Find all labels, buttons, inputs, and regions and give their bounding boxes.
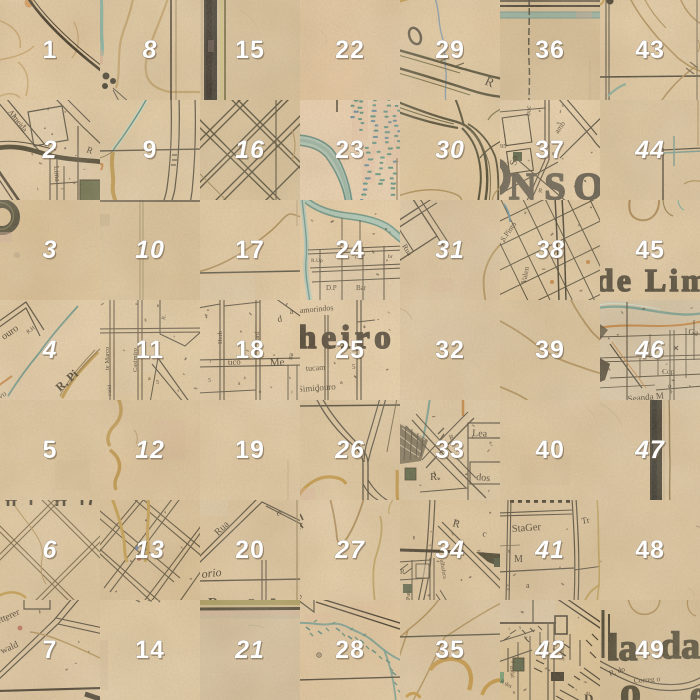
svg-text:8: 8 bbox=[143, 36, 158, 64]
svg-text:34: 34 bbox=[435, 536, 465, 564]
svg-text:43: 43 bbox=[635, 36, 665, 64]
svg-text:13: 13 bbox=[135, 536, 165, 564]
svg-text:41: 41 bbox=[534, 536, 565, 564]
svg-text:12: 12 bbox=[135, 436, 165, 464]
svg-text:31: 31 bbox=[435, 236, 465, 264]
svg-text:47: 47 bbox=[634, 436, 665, 464]
svg-text:37: 37 bbox=[535, 136, 565, 164]
svg-text:7: 7 bbox=[43, 636, 58, 664]
svg-text:21: 21 bbox=[234, 636, 265, 664]
svg-text:24: 24 bbox=[335, 236, 365, 264]
svg-text:20: 20 bbox=[235, 536, 265, 564]
svg-text:33: 33 bbox=[435, 436, 465, 464]
svg-text:9: 9 bbox=[143, 136, 158, 164]
svg-text:32: 32 bbox=[435, 336, 465, 364]
svg-text:19: 19 bbox=[235, 436, 265, 464]
svg-text:29: 29 bbox=[435, 36, 465, 64]
svg-text:30: 30 bbox=[435, 136, 465, 164]
svg-text:2: 2 bbox=[42, 136, 58, 164]
svg-text:23: 23 bbox=[335, 136, 365, 164]
svg-text:48: 48 bbox=[635, 536, 665, 564]
svg-text:46: 46 bbox=[634, 336, 665, 364]
svg-text:16: 16 bbox=[235, 136, 265, 164]
svg-text:3: 3 bbox=[43, 236, 58, 264]
svg-text:40: 40 bbox=[535, 436, 565, 464]
svg-text:17: 17 bbox=[235, 236, 265, 264]
svg-text:10: 10 bbox=[135, 236, 165, 264]
svg-text:25: 25 bbox=[335, 336, 365, 364]
svg-text:36: 36 bbox=[535, 36, 565, 64]
svg-text:42: 42 bbox=[534, 636, 565, 664]
svg-text:1: 1 bbox=[43, 36, 58, 64]
svg-text:22: 22 bbox=[335, 36, 365, 64]
svg-text:26: 26 bbox=[334, 436, 365, 464]
svg-text:39: 39 bbox=[535, 336, 565, 364]
svg-text:5: 5 bbox=[43, 436, 58, 464]
svg-text:44: 44 bbox=[634, 136, 665, 164]
svg-text:28: 28 bbox=[335, 636, 365, 664]
svg-text:38: 38 bbox=[535, 236, 565, 264]
svg-text:14: 14 bbox=[135, 636, 165, 664]
svg-text:45: 45 bbox=[635, 236, 665, 264]
svg-text:35: 35 bbox=[435, 636, 465, 664]
svg-text:18: 18 bbox=[235, 336, 265, 364]
svg-text:49: 49 bbox=[635, 636, 665, 664]
svg-text:27: 27 bbox=[334, 536, 365, 564]
svg-text:6: 6 bbox=[43, 536, 58, 564]
svg-text:4: 4 bbox=[42, 336, 58, 364]
svg-text:11: 11 bbox=[136, 336, 164, 364]
svg-text:15: 15 bbox=[235, 36, 265, 64]
